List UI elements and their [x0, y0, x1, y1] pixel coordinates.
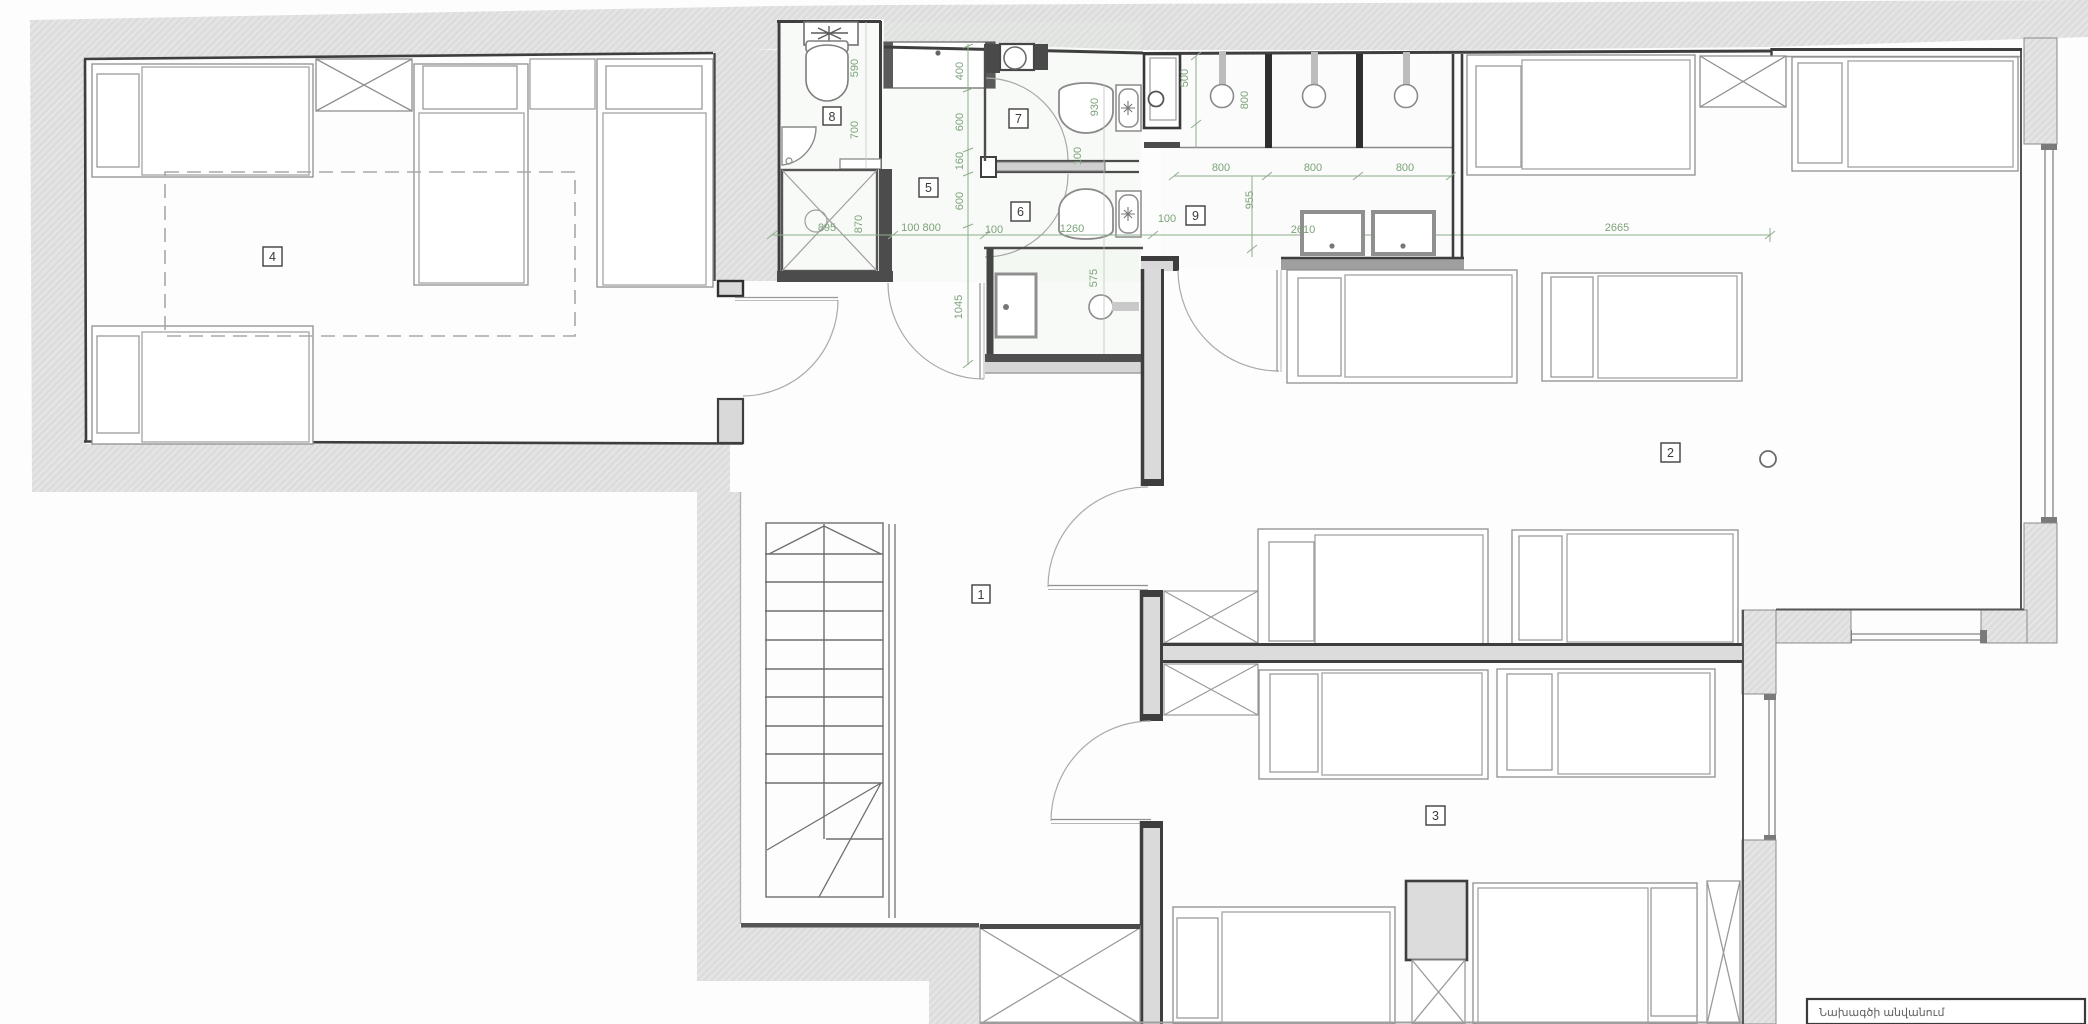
svg-text:930: 930: [1089, 98, 1101, 116]
svg-text:3: 3: [1432, 809, 1439, 823]
svg-text:100: 100: [1072, 147, 1084, 165]
svg-text:160: 160: [954, 152, 966, 170]
svg-text:100 800: 100 800: [901, 222, 941, 234]
svg-text:800: 800: [1212, 162, 1230, 174]
svg-text:800: 800: [1396, 162, 1414, 174]
svg-text:2665: 2665: [1605, 222, 1629, 234]
svg-text:400: 400: [954, 62, 966, 80]
svg-text:8: 8: [829, 110, 836, 124]
svg-text:500: 500: [1179, 69, 1191, 87]
svg-text:100: 100: [1158, 213, 1176, 225]
svg-text:800: 800: [1304, 162, 1322, 174]
svg-text:100: 100: [985, 224, 1003, 236]
svg-text:955: 955: [1244, 191, 1256, 209]
svg-text:1045: 1045: [953, 295, 965, 319]
svg-text:895: 895: [818, 222, 836, 234]
svg-text:2610: 2610: [1291, 224, 1315, 236]
svg-text:7: 7: [1015, 112, 1022, 126]
svg-text:Նախագծի անվանում: Նախագծի անվանում: [1819, 1007, 1945, 1019]
svg-text:800: 800: [1239, 91, 1251, 109]
svg-text:870: 870: [853, 215, 865, 233]
svg-text:600: 600: [954, 192, 966, 210]
svg-text:590: 590: [849, 59, 861, 77]
svg-text:4: 4: [269, 250, 276, 264]
svg-text:700: 700: [849, 121, 861, 139]
svg-text:6: 6: [1017, 205, 1024, 219]
svg-text:2: 2: [1667, 446, 1674, 460]
svg-text:600: 600: [954, 113, 966, 131]
svg-text:575: 575: [1088, 269, 1100, 287]
svg-text:1260: 1260: [1060, 223, 1084, 235]
svg-text:9: 9: [1192, 209, 1199, 223]
svg-text:5: 5: [925, 181, 932, 195]
svg-text:1: 1: [978, 588, 985, 602]
